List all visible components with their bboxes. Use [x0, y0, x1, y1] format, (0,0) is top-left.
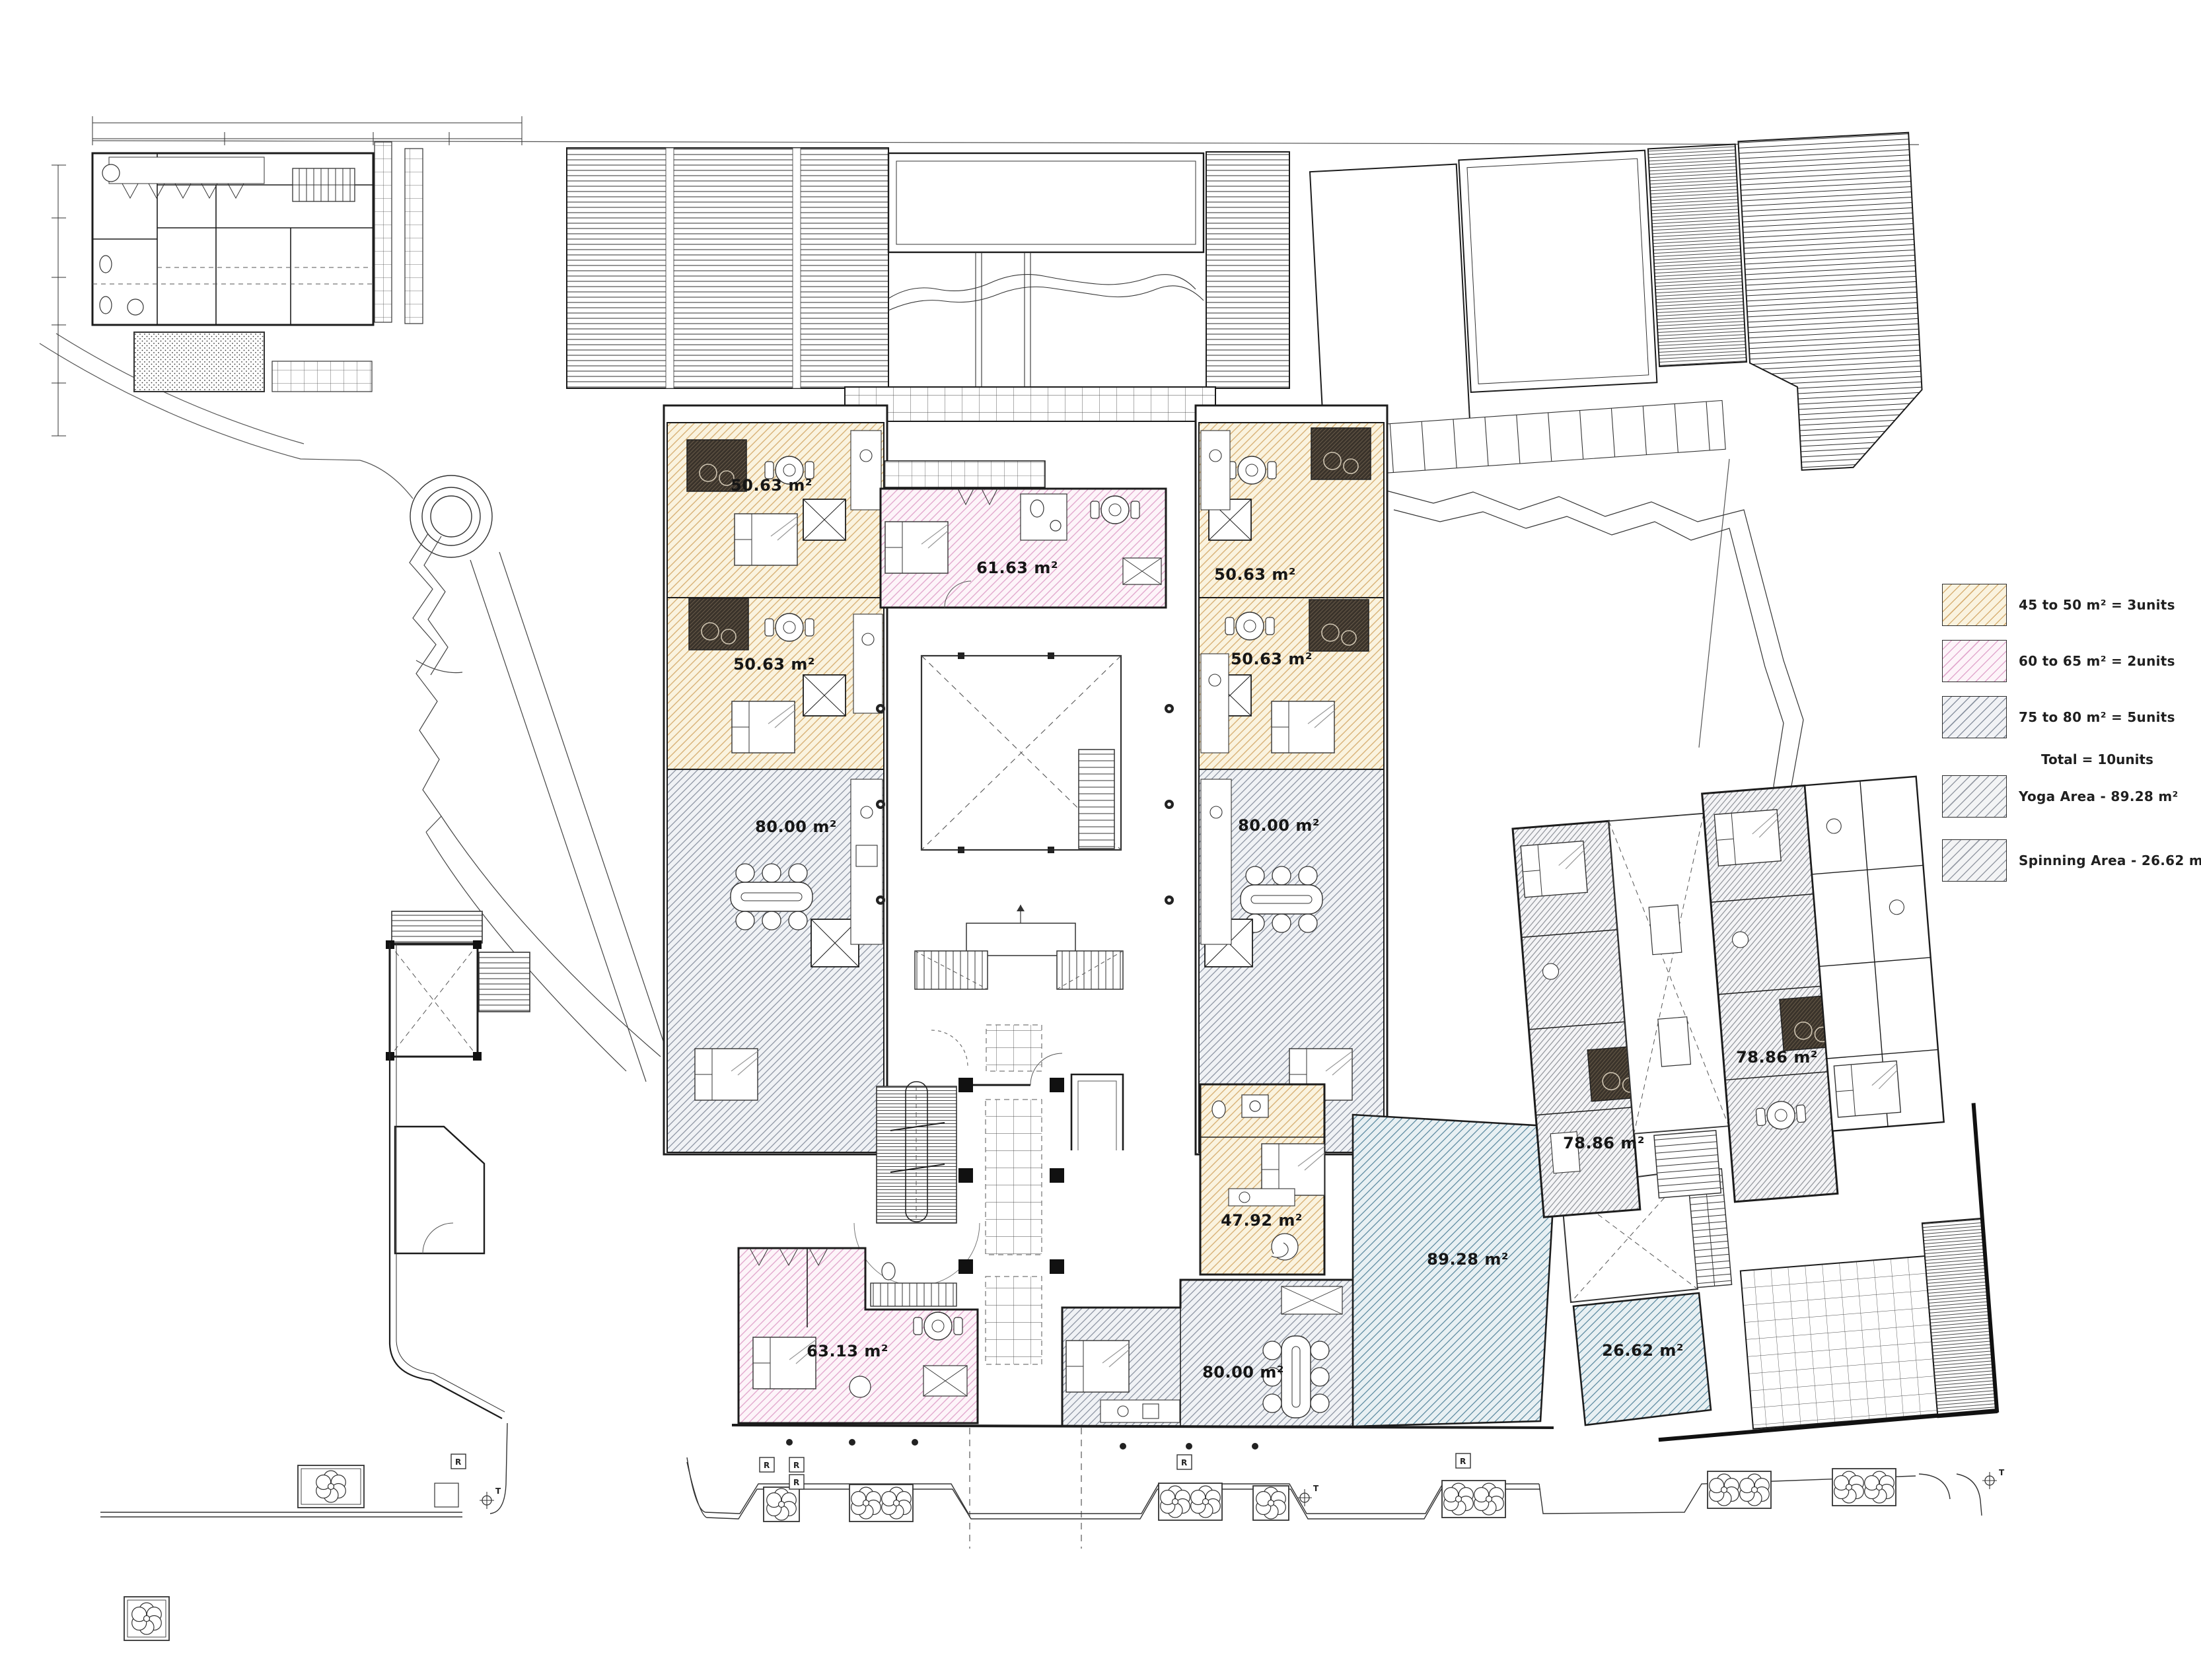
svg-text:R: R: [1460, 1457, 1466, 1466]
bed-r2: [1272, 701, 1334, 753]
unit-bottom-beige-room: [1200, 1084, 1324, 1275]
facade-base: [732, 1425, 1554, 1428]
unit-center-top-room: [881, 461, 1166, 608]
label-unit-right-1: 50.63 m²: [1214, 565, 1296, 584]
legend-label: 45 to 50 m² = 3units: [2019, 597, 2175, 613]
bed-t2: [1714, 810, 1781, 866]
entrance-axis: [970, 1428, 1081, 1549]
tap-labels: T T T: [495, 1468, 2005, 1496]
bed-l2: [732, 701, 795, 753]
legend-label: Yoga Area - 89.28 m²: [2019, 788, 2179, 804]
legend-swatch-yoga: [1942, 775, 2007, 818]
tap-label: T: [1313, 1484, 1319, 1493]
canopy-grid: [845, 387, 1215, 421]
wing-right: [1196, 405, 1387, 1154]
legend-label: Spinning Area - 26.62 m²: [2019, 853, 2201, 868]
plan-drawing: T T T R R R R R R 50.63 m² 50.63 m² 80.0…: [0, 0, 2201, 1680]
label-unit-left-3: 80.00 m²: [755, 818, 837, 836]
roof-louver-left: [567, 148, 888, 388]
label-unit-right-3: 80.00 m²: [1238, 816, 1320, 835]
legend-row-spinning: Spinning Area - 26.62 m²: [1942, 839, 2201, 882]
west-pavilion: [386, 911, 530, 1418]
bed-l3: [695, 1049, 758, 1100]
bed-l1: [735, 514, 797, 565]
label-unit-tilted-left: 78.86 m²: [1563, 1134, 1645, 1152]
label-unit-right-2: 50.63 m²: [1231, 650, 1313, 668]
legend-swatch-pink: [1942, 640, 2007, 682]
dark-mat-r1: [1311, 428, 1371, 479]
courtyard-stair: [1079, 750, 1114, 849]
svg-text:R: R: [793, 1478, 799, 1487]
arcade-columns: [786, 1439, 1258, 1450]
label-unit-center: 61.63 m²: [976, 559, 1058, 577]
dark-mat-r2: [1309, 600, 1369, 651]
label-unit-tilted-right: 78.86 m²: [1736, 1048, 1818, 1067]
side-stair: [871, 1283, 956, 1306]
legend-swatch-spinning: [1942, 839, 2007, 882]
dark-mat-l2: [689, 598, 748, 650]
tap-label: T: [495, 1487, 501, 1496]
tap-label: T: [1999, 1468, 2005, 1477]
unit-bottom-gray-room: [1062, 1280, 1354, 1426]
label-unit-left-1: 50.63 m²: [731, 476, 812, 495]
legend-swatch-beige: [1942, 584, 2007, 626]
fountain: [410, 475, 492, 557]
label-unit-bottom-pink: 63.13 m²: [807, 1342, 888, 1360]
legend-total: Total = 10units: [2041, 752, 2153, 767]
dining-l3: [731, 864, 812, 930]
legend-row-75-80: 75 to 80 m² = 5units: [1942, 696, 2175, 738]
legend: 45 to 50 m² = 3units 60 to 65 m² = 2unit…: [1942, 584, 2201, 894]
label-spinning-area: 26.62 m²: [1602, 1341, 1684, 1360]
legend-swatch-gray: [1942, 696, 2007, 738]
lamp-icon: [480, 1492, 494, 1509]
grand-stairs: [915, 905, 1123, 989]
courtyard-void: [876, 652, 1174, 905]
planters: [124, 1465, 1896, 1640]
label-unit-bottom-beige: 47.92 m²: [1221, 1211, 1303, 1230]
bed-t1: [1521, 841, 1587, 897]
svg-text:R: R: [793, 1461, 799, 1470]
wing-left: [664, 405, 887, 1154]
bed-b3: [1066, 1341, 1129, 1392]
tilted-court-stair: [1654, 1131, 1721, 1198]
label-unit-bottom-gray: 80.00 m²: [1202, 1363, 1284, 1382]
roof-louver-mid: [1206, 152, 1289, 388]
annex-building: [52, 116, 522, 436]
legend-row-60-65: 60 to 65 m² = 2units: [1942, 640, 2175, 682]
annex-deck: [134, 332, 264, 392]
water-edge-top: [888, 252, 1204, 387]
roof-white-panel: [888, 153, 1204, 252]
legend-label: 60 to 65 m² = 2units: [2019, 653, 2175, 669]
label-yoga-area: 89.28 m²: [1427, 1250, 1509, 1269]
bed-t3: [1834, 1061, 1900, 1117]
yoga-area-room: [1353, 1115, 1558, 1426]
tilted-terrace-grid: [1741, 1256, 1937, 1429]
label-unit-left-2: 50.63 m²: [733, 655, 815, 674]
unit-bottom-pink-room: [739, 1248, 978, 1423]
legend-label: 75 to 80 m² = 5units: [2019, 709, 2175, 725]
svg-text:R: R: [1181, 1458, 1187, 1467]
legend-row-yoga: Yoga Area - 89.28 m²: [1942, 775, 2179, 818]
bed-b2: [1262, 1144, 1324, 1195]
lamp-icon: [1982, 1472, 1997, 1489]
bed-c1: [885, 522, 948, 573]
svg-text:R: R: [764, 1461, 770, 1470]
legend-row-45-50: 45 to 50 m² = 3units: [1942, 584, 2175, 626]
floor-plan-canvas: T T T R R R R R R 50.63 m² 50.63 m² 80.0…: [0, 0, 2201, 1680]
svg-text:R: R: [455, 1457, 461, 1467]
